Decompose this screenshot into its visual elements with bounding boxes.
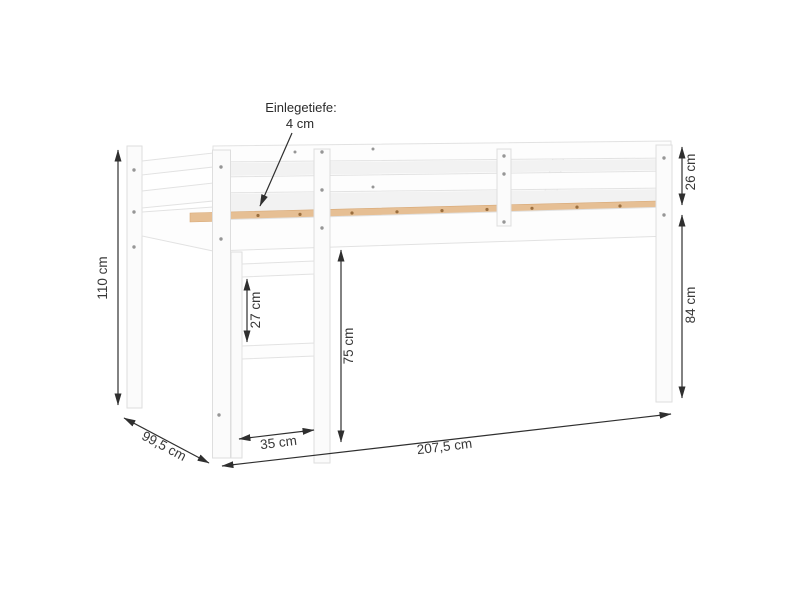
dimension-label-total-height: 110 cm — [95, 256, 110, 299]
left-side-top-rail — [142, 153, 213, 175]
slat-screw — [440, 209, 443, 212]
bed-front-left-post — [213, 150, 231, 458]
slat-screw — [575, 206, 578, 209]
slat-screw — [618, 204, 621, 207]
dimension-total-height: 110 cm — [95, 150, 118, 405]
ladder-rung-2 — [242, 343, 314, 359]
bed-back-left-post — [127, 146, 142, 408]
ladder-right-stile — [314, 149, 330, 463]
ladder-left-stile — [231, 252, 242, 458]
dimension-label-ladder-width: 35 cm — [259, 433, 297, 452]
slat-screw — [530, 207, 533, 210]
slat-screw — [256, 214, 259, 217]
dimension-label-leg-height: 84 cm — [683, 287, 698, 324]
diagram-canvas: Einlegetiefe: 4 cm 110 cm 99,5 cm 27 cm … — [0, 0, 800, 600]
dimension-label-guard-rail-height: 26 cm — [683, 154, 698, 191]
front-top-rail — [213, 141, 671, 162]
left-side-mid-rail — [142, 183, 213, 208]
callout-label-line2: 4 cm — [286, 116, 314, 131]
dimension-rung-spacing: 27 cm — [247, 279, 263, 342]
bed-drawing — [127, 141, 672, 463]
loft-bed-dimension-diagram: Einlegetiefe: 4 cm 110 cm 99,5 cm 27 cm … — [0, 0, 800, 600]
guard-rail-mid-post — [497, 149, 511, 226]
dimension-label-rung-spacing: 27 cm — [248, 292, 263, 329]
slat-screw — [298, 213, 301, 216]
dimension-ladder-width: 35 cm — [239, 430, 314, 452]
slat-screw — [485, 208, 488, 211]
dimension-label-depth: 99,5 cm — [139, 428, 188, 464]
slat-screw — [350, 211, 353, 214]
bed-front-right-post — [656, 145, 672, 402]
slat-screw — [395, 210, 398, 213]
dimension-under-bed-clearance: 75 cm — [341, 250, 356, 442]
bed-left-side-rails — [142, 153, 213, 251]
ladder-rung-1 — [242, 261, 314, 277]
dimension-guard-rail-height: 26 cm — [682, 147, 698, 205]
dimension-label-under-bed-clearance: 75 cm — [341, 328, 356, 365]
callout-label-line1: Einlegetiefe: — [265, 100, 337, 115]
dimension-label-length: 207,5 cm — [416, 436, 473, 457]
dimension-leg-height: 84 cm — [682, 215, 698, 398]
dimension-depth: 99,5 cm — [124, 418, 209, 464]
